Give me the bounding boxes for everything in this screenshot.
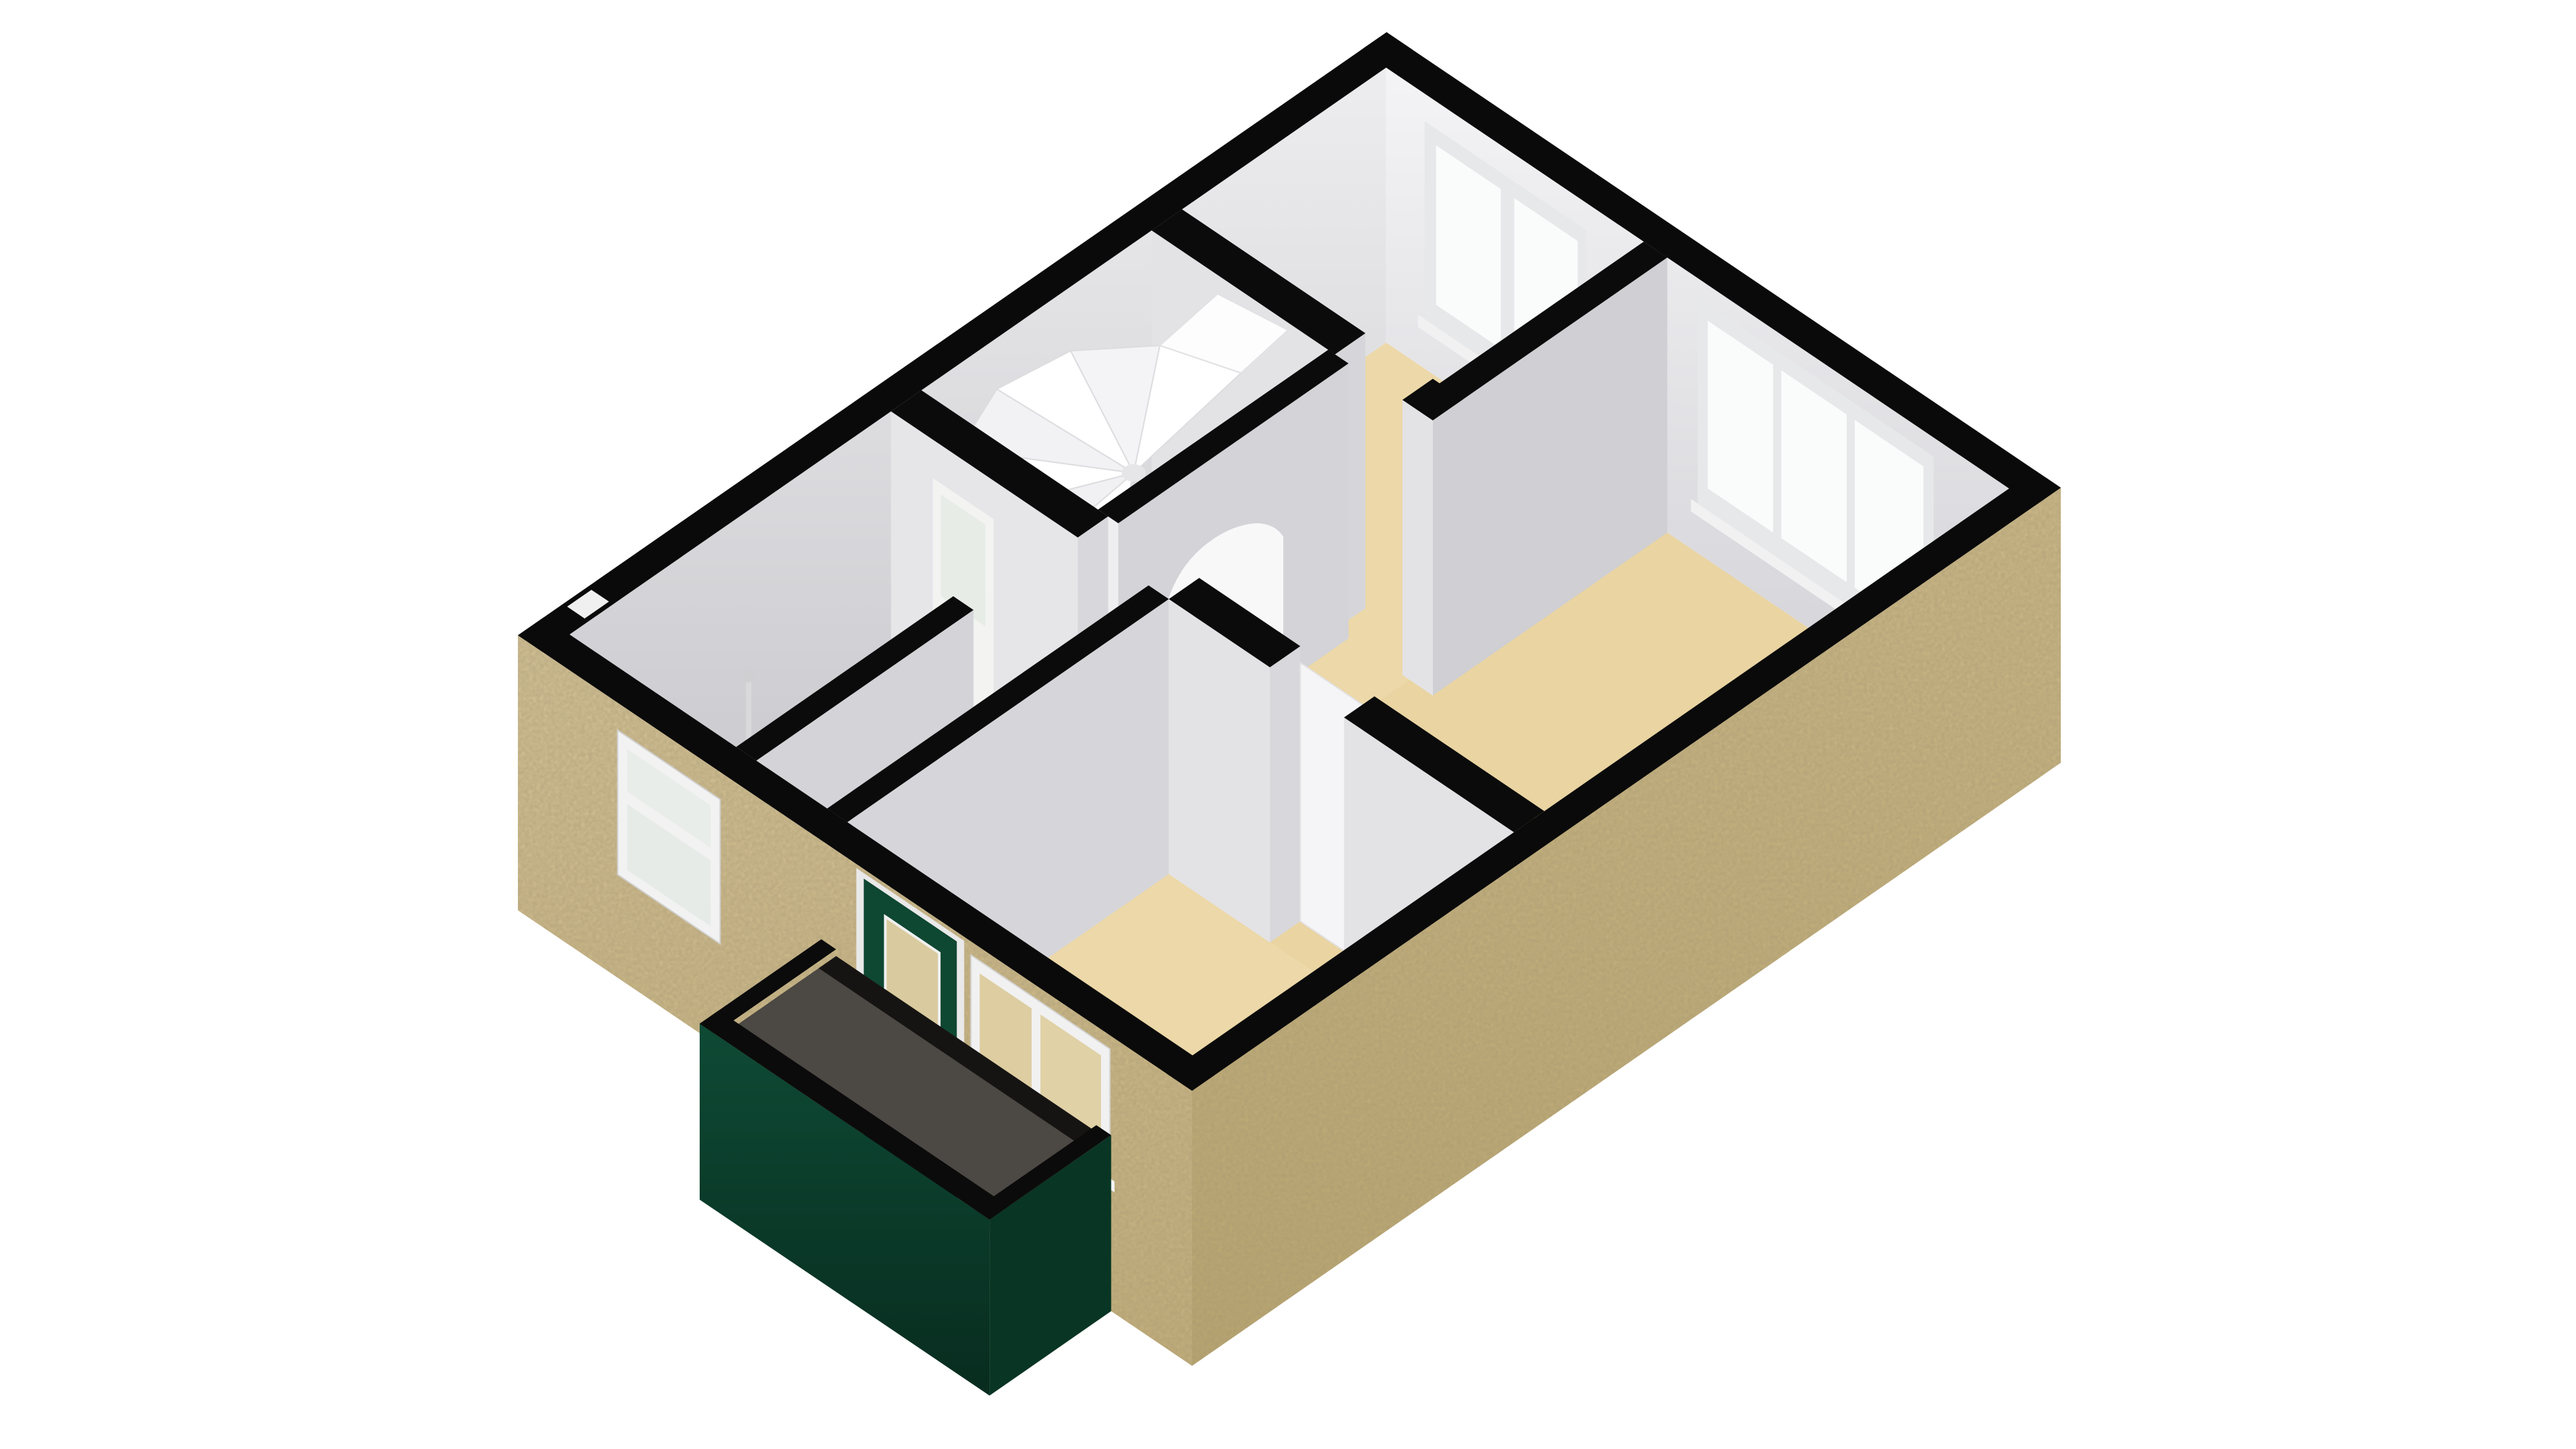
wall-bedroom-front-face-2: [1403, 400, 1433, 696]
wall-room-divider-cap: [1270, 646, 1300, 943]
floorplan-3d-render: [0, 0, 2576, 1449]
shower-head: [743, 670, 755, 682]
floorplan-stage: [0, 0, 2576, 1449]
